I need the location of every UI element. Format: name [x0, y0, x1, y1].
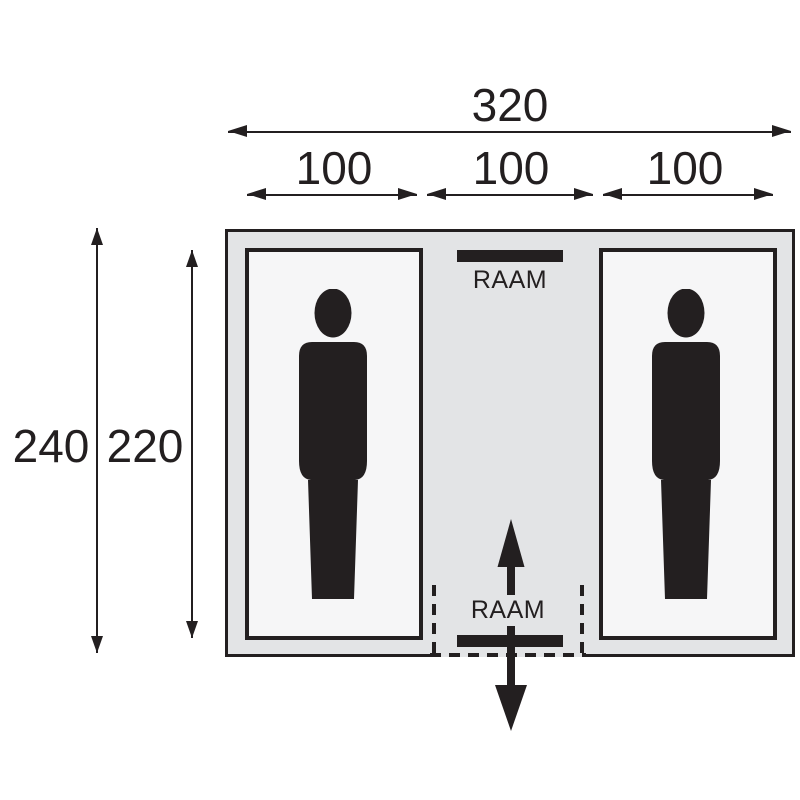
- window-bottom-label: RAAM: [471, 598, 545, 623]
- total-width-arrow: [228, 131, 791, 133]
- door-arrow-in-icon: [495, 518, 527, 598]
- outer-depth-arrow: [96, 228, 98, 653]
- section-width-label-3: 100: [647, 145, 724, 191]
- section-width-label-2: 100: [473, 145, 550, 191]
- total-width-label: 320: [472, 82, 549, 128]
- person-silhouette-right-icon: [650, 289, 722, 599]
- section-width-arrow-2: [427, 194, 593, 196]
- door-arrow-out-icon: [493, 626, 529, 732]
- section-width-label-1: 100: [296, 145, 373, 191]
- section-width-arrow-3: [603, 194, 773, 196]
- section-width-arrow-1: [247, 194, 417, 196]
- inner-depth-label: 220: [107, 423, 184, 469]
- window-bar-top: [457, 250, 563, 262]
- outer-depth-label: 240: [13, 423, 90, 469]
- person-silhouette-left-icon: [297, 289, 369, 599]
- window-top-label: RAAM: [473, 268, 547, 293]
- inner-depth-arrow: [191, 250, 193, 638]
- tent-floorplan-diagram: 320 100 100 100 240 220 RAAM RAAM: [0, 0, 800, 800]
